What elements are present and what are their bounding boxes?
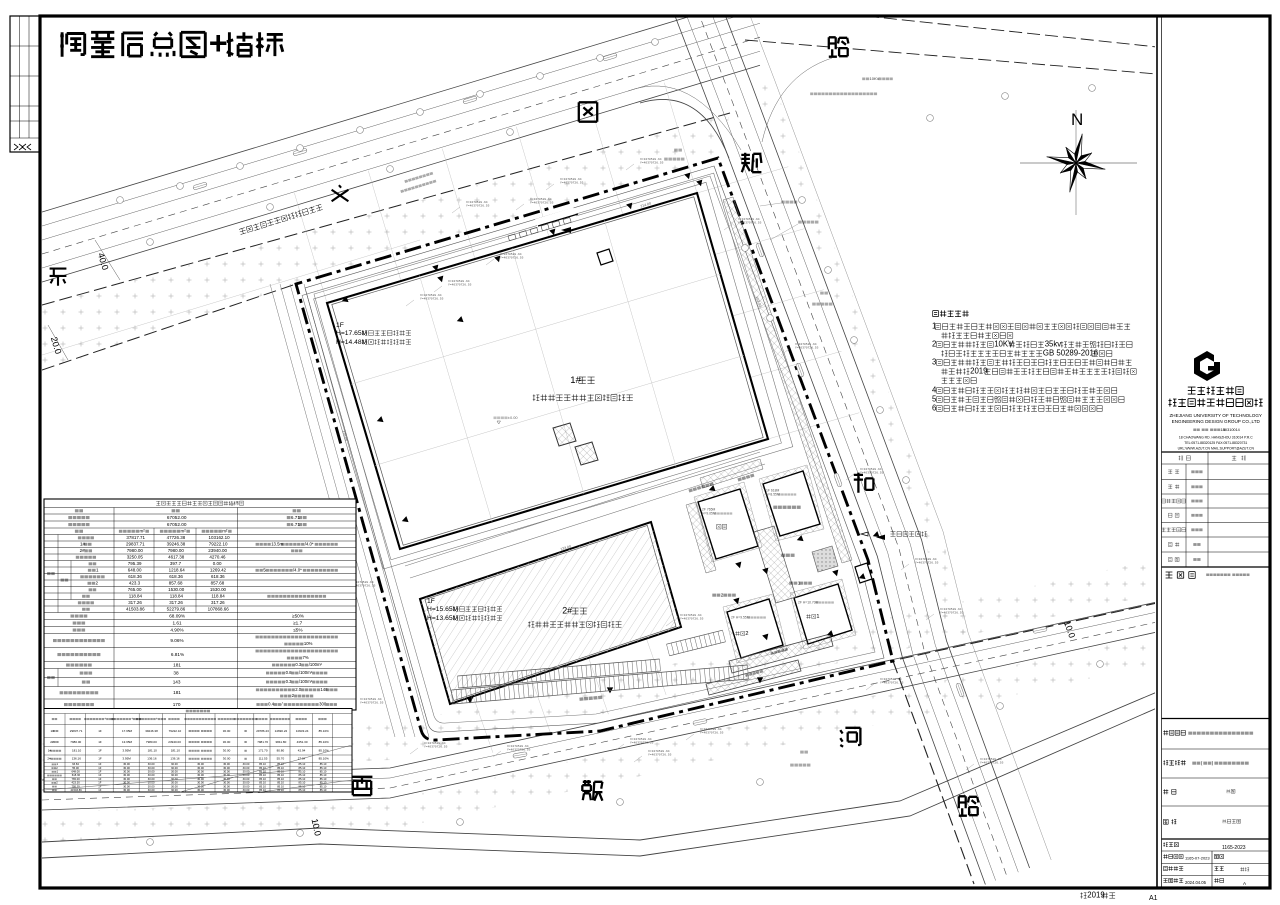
- svg-text:38: 38: [173, 670, 179, 675]
- svg-text:23940.00: 23940.00: [168, 740, 181, 744]
- svg-text:m²: m²: [181, 529, 187, 534]
- svg-text:1F: 1F: [98, 757, 102, 761]
- svg-text:3: 3: [932, 358, 937, 367]
- svg-text:X=3470528.64: X=3470528.64: [360, 698, 382, 701]
- svg-text:39246.38: 39246.38: [145, 729, 158, 733]
- svg-text:±0.00: ±0.00: [508, 415, 519, 420]
- svg-text:1F: 1F: [98, 729, 102, 733]
- svg-text:39246.38: 39246.38: [167, 542, 186, 547]
- svg-text:67052.00: 67052.00: [167, 522, 187, 527]
- svg-text:1218.64: 1218.64: [169, 568, 186, 573]
- svg-text:30.00: 30.00: [243, 784, 250, 788]
- svg-text:765.00: 765.00: [72, 777, 81, 781]
- svg-text:2024.04.05: 2024.04.05: [1185, 880, 1207, 885]
- svg-text:1F: 1F: [98, 740, 102, 744]
- svg-text:Y=40370726.55: Y=40370726.55: [640, 162, 664, 165]
- svg-text:GB 50289-2016: GB 50289-2016: [1043, 349, 1099, 358]
- svg-text:181: 181: [173, 662, 181, 667]
- svg-text:Y=40370726.55: Y=40370726.55: [466, 205, 490, 208]
- svg-text:X=3470528.64: X=3470528.64: [466, 201, 488, 204]
- svg-text:79222.10: 79222.10: [209, 542, 228, 547]
- svg-text:X=3470528.64: X=3470528.64: [680, 614, 702, 617]
- svg-text:2: 2: [932, 340, 936, 349]
- svg-text:618.36: 618.36: [128, 574, 142, 579]
- svg-text:68.09%: 68.09%: [169, 613, 185, 618]
- svg-text:2.0: 2.0: [295, 687, 302, 692]
- svg-text:A1: A1: [1149, 895, 1158, 902]
- svg-text:X=3470528.64: X=3470528.64: [640, 158, 662, 161]
- svg-text:30.00: 30.00: [148, 784, 155, 788]
- svg-text:30.00: 30.00: [223, 777, 230, 781]
- svg-text:35kv: 35kv: [1045, 340, 1062, 349]
- svg-text:30.00: 30.00: [123, 784, 130, 788]
- svg-text:1#: 1#: [570, 375, 581, 386]
- svg-text:4270.46: 4270.46: [209, 555, 226, 560]
- svg-text:1F: 1F: [98, 777, 101, 781]
- svg-text:1: 1: [816, 614, 819, 620]
- svg-text:7980.00: 7980.00: [146, 740, 157, 744]
- svg-text:423.30: 423.30: [72, 781, 81, 785]
- svg-text:30.00: 30.00: [148, 773, 155, 777]
- svg-text:7980.00: 7980.00: [127, 548, 144, 553]
- svg-text:85.10: 85.10: [259, 773, 266, 777]
- svg-text:118.84: 118.84: [211, 594, 225, 599]
- svg-text:85.10: 85.10: [320, 770, 327, 774]
- svg-text:6: 6: [932, 404, 937, 413]
- svg-text:Y=40370726.55: Y=40370726.55: [648, 754, 672, 757]
- svg-text:14690.22: 14690.22: [275, 729, 288, 733]
- svg-text:1165-07-2023: 1165-07-2023: [1185, 856, 1210, 861]
- svg-text:85.10: 85.10: [259, 781, 266, 785]
- svg-text:80.80: 80.80: [277, 749, 285, 753]
- svg-text:/100m²: /100m²: [309, 662, 323, 667]
- svg-text:29837.71: 29837.71: [70, 729, 83, 733]
- svg-text:30.00: 30.00: [171, 770, 178, 774]
- svg-text:423.3: 423.3: [129, 581, 141, 586]
- svg-text:30.00: 30.00: [197, 770, 204, 774]
- svg-text:X=3470528.64: X=3470528.64: [795, 343, 817, 346]
- svg-text:30.00: 30.00: [171, 773, 178, 777]
- svg-text:1165-2023: 1165-2023: [1222, 845, 1246, 851]
- svg-text:X=3470528.64: X=3470528.64: [700, 728, 722, 731]
- svg-text:Y=40370726.55: Y=40370726.55: [424, 746, 448, 749]
- svg-text:4351.30: 4351.30: [297, 740, 308, 744]
- svg-text:2#: 2#: [50, 740, 54, 744]
- svg-text:1.61: 1.61: [173, 620, 183, 625]
- svg-text:5: 5: [932, 395, 937, 404]
- svg-text:H=17.65M: H=17.65M: [336, 330, 368, 337]
- svg-text:1F: 1F: [98, 773, 101, 777]
- svg-text:317.26: 317.26: [128, 600, 142, 605]
- svg-text:7981.70: 7981.70: [257, 740, 268, 744]
- svg-text:30.00: 30.00: [223, 729, 231, 733]
- svg-text:Y=40370726.55: Y=40370726.55: [530, 202, 554, 205]
- svg-text:Y=40370726.55: Y=40370726.55: [507, 749, 531, 752]
- svg-text:Y=40370726.55: Y=40370726.55: [980, 762, 1004, 765]
- svg-text:m²: m²: [222, 529, 228, 534]
- svg-text:30.00: 30.00: [123, 777, 130, 781]
- svg-text:TEL:0571-88320125 FAX:0571-88: TEL:0571-88320125 FAX:0571-88320731: [1184, 441, 1247, 445]
- svg-text:1F: 1F: [98, 762, 101, 766]
- svg-text:30.00: 30.00: [123, 762, 130, 766]
- svg-text:/4.0*: /4.0*: [305, 542, 314, 547]
- svg-text:≥1.7: ≥1.7: [293, 620, 302, 625]
- svg-text:Y=40370726.55: Y=40370726.55: [880, 682, 904, 685]
- svg-text:181.10: 181.10: [171, 749, 181, 753]
- svg-text:136.16: 136.16: [72, 757, 82, 761]
- svg-text:H=13.65M: H=13.65M: [427, 615, 459, 622]
- svg-text:55.00: 55.00: [72, 766, 79, 770]
- svg-text:X=3470528.64: X=3470528.64: [738, 218, 760, 221]
- svg-text:47726.38: 47726.38: [167, 535, 186, 540]
- svg-text:85.10: 85.10: [320, 788, 327, 792]
- svg-text:3.95M: 3.95M: [122, 749, 131, 753]
- svg-text:795.39: 795.39: [128, 561, 142, 566]
- svg-text:85.10: 85.10: [299, 766, 306, 770]
- svg-text:1F: 1F: [98, 788, 101, 792]
- svg-text:85.10: 85.10: [277, 777, 284, 781]
- svg-text:30.00: 30.00: [223, 766, 230, 770]
- svg-text:41503.86: 41503.86: [71, 788, 83, 792]
- svg-text:85.10%: 85.10%: [319, 729, 330, 733]
- svg-text:Y=40370726.55: Y=40370726.55: [738, 222, 762, 225]
- svg-text:0.00: 0.00: [213, 561, 222, 566]
- svg-text:857.68: 857.68: [211, 581, 225, 586]
- svg-text:7980.00: 7980.00: [70, 740, 81, 744]
- svg-text:30.00: 30.00: [148, 777, 155, 781]
- svg-text:+: +: [104, 717, 106, 721]
- svg-text:30.00: 30.00: [171, 777, 178, 781]
- svg-text:0.3: 0.3: [295, 662, 302, 667]
- svg-text:30.00: 30.00: [171, 766, 178, 770]
- svg-text:Y=40370726.55: Y=40370726.55: [795, 347, 819, 350]
- svg-text:2019: 2019: [1087, 891, 1104, 900]
- svg-text:X=3470528.64: X=3470528.64: [500, 253, 522, 256]
- svg-text:23940.00: 23940.00: [208, 548, 227, 553]
- svg-text:30.00: 30.00: [223, 781, 230, 785]
- svg-text:30.00: 30.00: [243, 770, 250, 774]
- svg-text:30.00: 30.00: [148, 766, 155, 770]
- svg-text:30.00: 30.00: [223, 773, 230, 777]
- svg-text:618.36: 618.36: [169, 574, 183, 579]
- svg-text:30.00: 30.00: [223, 757, 231, 761]
- svg-text:/100m²: /100m²: [299, 679, 313, 684]
- svg-text:648.00: 648.00: [128, 568, 142, 573]
- svg-text:Y=40370726.55: Y=40370726.55: [680, 618, 704, 621]
- svg-text:30.00: 30.00: [171, 781, 178, 785]
- svg-text:397.7: 397.7: [170, 561, 182, 566]
- svg-text:7980.00: 7980.00: [168, 548, 185, 553]
- svg-text:30.00: 30.00: [197, 781, 204, 785]
- svg-text:618.36: 618.36: [72, 773, 81, 777]
- svg-text:X=3470528.64: X=3470528.64: [420, 294, 442, 297]
- svg-text:3250.05: 3250.05: [127, 555, 144, 560]
- svg-text:30.00: 30.00: [223, 749, 231, 753]
- svg-text:ZHEJIANG UNIVERSITY OF TECHNOL: ZHEJIANG UNIVERSITY OF TECHNOLOGY: [1170, 413, 1263, 418]
- svg-text:85.10: 85.10: [299, 773, 306, 777]
- svg-text:2F H=9.55M: 2F H=9.55M: [731, 616, 750, 620]
- svg-text:30.00: 30.00: [123, 770, 130, 774]
- svg-text:X=3470528.64: X=3470528.64: [424, 742, 446, 745]
- svg-text:41503.86: 41503.86: [126, 607, 145, 612]
- svg-text:2F H=10.70M: 2F H=10.70M: [798, 601, 819, 605]
- svg-text:42.94: 42.94: [298, 749, 306, 753]
- svg-text:30.00: 30.00: [171, 788, 178, 792]
- svg-text:107868.66: 107868.66: [208, 607, 230, 612]
- svg-text:136.16: 136.16: [147, 757, 157, 761]
- svg-text:37817.71: 37817.71: [126, 535, 145, 540]
- svg-text:9.06%: 9.06%: [170, 638, 183, 643]
- svg-text:/100m²: /100m²: [299, 670, 313, 675]
- svg-text:X=3470528.64: X=3470528.64: [940, 608, 962, 611]
- svg-text:30.00: 30.00: [197, 762, 204, 766]
- svg-text:30.00: 30.00: [123, 788, 130, 792]
- svg-text:29837.71: 29837.71: [126, 542, 145, 547]
- svg-text:85.10: 85.10: [277, 784, 284, 788]
- svg-text:85.10: 85.10: [277, 762, 284, 766]
- svg-text:85.10: 85.10: [277, 788, 284, 792]
- svg-text:X=3470528.64: X=3470528.64: [560, 178, 582, 181]
- svg-text:1F: 1F: [98, 749, 102, 753]
- svg-text:171.70: 171.70: [258, 749, 268, 753]
- svg-text:85.10: 85.10: [259, 762, 266, 766]
- svg-text:181.10: 181.10: [72, 749, 82, 753]
- svg-text:29786.43: 29786.43: [256, 729, 269, 733]
- svg-text:4.90%: 4.90%: [170, 627, 183, 632]
- svg-text:m²: m²: [140, 529, 146, 534]
- svg-text:URL:WWW.AZUT.CN MAIL:SUPPORT@: URL:WWW.AZUT.CN MAIL:SUPPORT@AZUT.CN: [1178, 447, 1255, 451]
- svg-text:30.00: 30.00: [148, 762, 155, 766]
- svg-text:2#: 2#: [80, 548, 85, 553]
- svg-text:Y=40370726.55: Y=40370726.55: [940, 612, 964, 615]
- svg-text:67052.00: 67052.00: [167, 515, 187, 520]
- svg-text:1530.00: 1530.00: [168, 587, 185, 592]
- svg-text:1F: 1F: [336, 322, 344, 329]
- svg-text:52279.86: 52279.86: [167, 607, 186, 612]
- svg-text:2#: 2#: [47, 757, 51, 761]
- svg-text:2: 2: [721, 592, 724, 597]
- svg-text:30.00: 30.00: [223, 788, 230, 792]
- svg-text:Y=40370726.55: Y=40370726.55: [560, 182, 584, 185]
- svg-text:85.10: 85.10: [259, 777, 266, 781]
- svg-text:30.00: 30.00: [148, 770, 155, 774]
- svg-text:10KV: 10KV: [994, 340, 1014, 349]
- svg-text:30.00: 30.00: [171, 762, 178, 766]
- svg-text:13.65M: 13.65M: [122, 740, 133, 744]
- svg-text:111.55: 111.55: [259, 757, 268, 761]
- svg-text:H=9.05M: H=9.05M: [702, 512, 716, 516]
- svg-text:≤5%: ≤5%: [293, 627, 302, 632]
- svg-text:85.10%: 85.10%: [319, 757, 330, 761]
- svg-text:103162.10: 103162.10: [209, 535, 231, 540]
- svg-text:X=3470528.64: X=3470528.64: [507, 745, 529, 748]
- svg-text:30.00: 30.00: [123, 766, 130, 770]
- svg-text:0.3: 0.3: [286, 679, 293, 684]
- svg-text:30.00: 30.00: [223, 740, 231, 744]
- svg-text:X=3470528.64: X=3470528.64: [448, 280, 470, 283]
- svg-text:85.10: 85.10: [320, 784, 327, 788]
- svg-text:X=3470528.64: X=3470528.64: [648, 750, 670, 753]
- svg-text:85.10%: 85.10%: [319, 740, 330, 744]
- svg-text:X=3470528.64: X=3470528.64: [530, 198, 552, 201]
- svg-text:1F: 1F: [427, 598, 435, 605]
- svg-text:30.00: 30.00: [171, 784, 178, 788]
- svg-text:30.00: 30.00: [123, 773, 130, 777]
- svg-text:85.10: 85.10: [320, 777, 327, 781]
- svg-text:4617.38: 4617.38: [168, 555, 185, 560]
- svg-text:30.00: 30.00: [197, 773, 204, 777]
- svg-text:1F: 1F: [98, 770, 101, 774]
- svg-text:Y=40370726.55: Y=40370726.55: [500, 257, 524, 260]
- svg-text:136.16: 136.16: [170, 757, 180, 761]
- svg-text:Y=40370726.55: Y=40370726.55: [448, 284, 472, 287]
- svg-text:30.00: 30.00: [243, 788, 250, 792]
- svg-text:85.10: 85.10: [320, 762, 327, 766]
- svg-text:18 CHAOWANG RD. HANGZHOU 31001: 18 CHAOWANG RD. HANGZHOU 310014 P.R.C: [1179, 436, 1253, 440]
- svg-text:317.26: 317.26: [169, 600, 183, 605]
- svg-text:30.00: 30.00: [123, 781, 130, 785]
- svg-text:85.10: 85.10: [277, 766, 284, 770]
- svg-text:Y=40370726.55: Y=40370726.55: [860, 472, 884, 475]
- svg-text:85.10: 85.10: [320, 766, 327, 770]
- svg-text:118.84: 118.84: [170, 594, 184, 599]
- svg-text:118.84: 118.84: [129, 594, 143, 599]
- svg-text:85.10: 85.10: [277, 773, 284, 777]
- svg-text:0.8: 0.8: [286, 670, 293, 675]
- svg-text:Y=40370726.55: Y=40370726.55: [915, 562, 939, 565]
- svg-text:30.00: 30.00: [197, 788, 204, 792]
- svg-text:85.10: 85.10: [259, 784, 266, 788]
- svg-text:30.00: 30.00: [243, 762, 250, 766]
- svg-text:Y=40370726.55: Y=40370726.55: [360, 702, 384, 705]
- svg-text:X=3470528.64: X=3470528.64: [880, 678, 902, 681]
- svg-text:3841.80: 3841.80: [275, 740, 286, 744]
- svg-text:ENGINEERING DESIGN GROUP CO.,L: ENGINEERING DESIGN GROUP CO.,LTD: [1172, 419, 1261, 424]
- svg-text:2#: 2#: [562, 606, 572, 616]
- svg-text:Y=40370726.55: Y=40370726.55: [700, 732, 724, 735]
- svg-text:55.70: 55.70: [277, 757, 285, 761]
- svg-text:6.81%: 6.81%: [171, 652, 184, 657]
- svg-text:317.26: 317.26: [211, 600, 225, 605]
- svg-text:≥50%: ≥50%: [292, 613, 304, 618]
- svg-text:30.00: 30.00: [223, 784, 230, 788]
- svg-text:2: 2: [745, 631, 748, 637]
- svg-text:4: 4: [932, 386, 937, 395]
- svg-text:H=15.65M: H=15.65M: [427, 606, 459, 613]
- svg-text:85.10: 85.10: [299, 762, 306, 766]
- svg-text:30.00: 30.00: [223, 770, 230, 774]
- svg-text:85.10%: 85.10%: [319, 749, 330, 753]
- svg-text:85.10: 85.10: [277, 781, 284, 785]
- svg-text:1269.42: 1269.42: [210, 568, 227, 573]
- svg-text:765.00: 765.00: [128, 587, 142, 592]
- svg-text:857.68: 857.68: [169, 581, 183, 586]
- svg-text:30.00: 30.00: [148, 788, 155, 792]
- svg-text:30.00: 30.00: [223, 762, 230, 766]
- svg-text:85.10: 85.10: [320, 773, 327, 777]
- svg-text:Y=40370726.55: Y=40370726.55: [420, 298, 444, 301]
- svg-text:+: +: [209, 25, 228, 61]
- svg-text:170: 170: [173, 702, 181, 707]
- svg-text:10KV: 10KV: [870, 76, 880, 81]
- svg-text:X=3470528.64: X=3470528.64: [860, 468, 882, 471]
- svg-text:0.4: 0.4: [268, 702, 275, 707]
- svg-text:3.95M: 3.95M: [122, 757, 131, 761]
- svg-text:30.00: 30.00: [197, 766, 204, 770]
- svg-text:X=3470528.64: X=3470528.64: [980, 758, 1002, 761]
- svg-text:618.36: 618.36: [211, 574, 225, 579]
- svg-text:7%: 7%: [303, 655, 309, 660]
- svg-text:H=14.48M: H=14.48M: [336, 339, 368, 346]
- svg-text:648.00: 648.00: [72, 770, 81, 774]
- svg-text:79222.10: 79222.10: [169, 729, 182, 733]
- svg-text:30.00: 30.00: [243, 777, 250, 781]
- svg-text:H=8.55M: H=8.55M: [766, 493, 780, 497]
- svg-text:181.10: 181.10: [148, 749, 158, 753]
- svg-text:/4.0*: /4.0*: [293, 568, 302, 573]
- svg-text:85.10: 85.10: [299, 788, 306, 792]
- svg-text:X=3470528.64: X=3470528.64: [630, 738, 652, 741]
- svg-text:63.84: 63.84: [72, 762, 79, 766]
- svg-text:17.65M: 17.65M: [122, 729, 133, 733]
- svg-text:1F: 1F: [98, 766, 101, 770]
- svg-text:310014: 310014: [1227, 428, 1240, 432]
- svg-text:10%: 10%: [304, 641, 313, 646]
- svg-text:30.00: 30.00: [243, 766, 250, 770]
- svg-text:1530.00: 1530.00: [210, 587, 227, 592]
- svg-text:143: 143: [173, 679, 181, 684]
- svg-text:Y=40370726.55: Y=40370726.55: [630, 742, 654, 745]
- svg-text:85.10: 85.10: [299, 781, 306, 785]
- svg-text:181: 181: [173, 690, 181, 695]
- svg-text:X=3470528.64: X=3470528.64: [915, 558, 937, 561]
- svg-text:+: +: [156, 717, 158, 721]
- svg-text:1F: 1F: [98, 784, 101, 788]
- svg-text:300: 300: [319, 702, 327, 707]
- svg-text:85.10: 85.10: [299, 777, 306, 781]
- svg-text:10933.24: 10933.24: [296, 729, 309, 733]
- svg-text:1F: 1F: [98, 781, 101, 785]
- svg-text:N: N: [1071, 110, 1083, 129]
- svg-text:30.00: 30.00: [243, 781, 250, 785]
